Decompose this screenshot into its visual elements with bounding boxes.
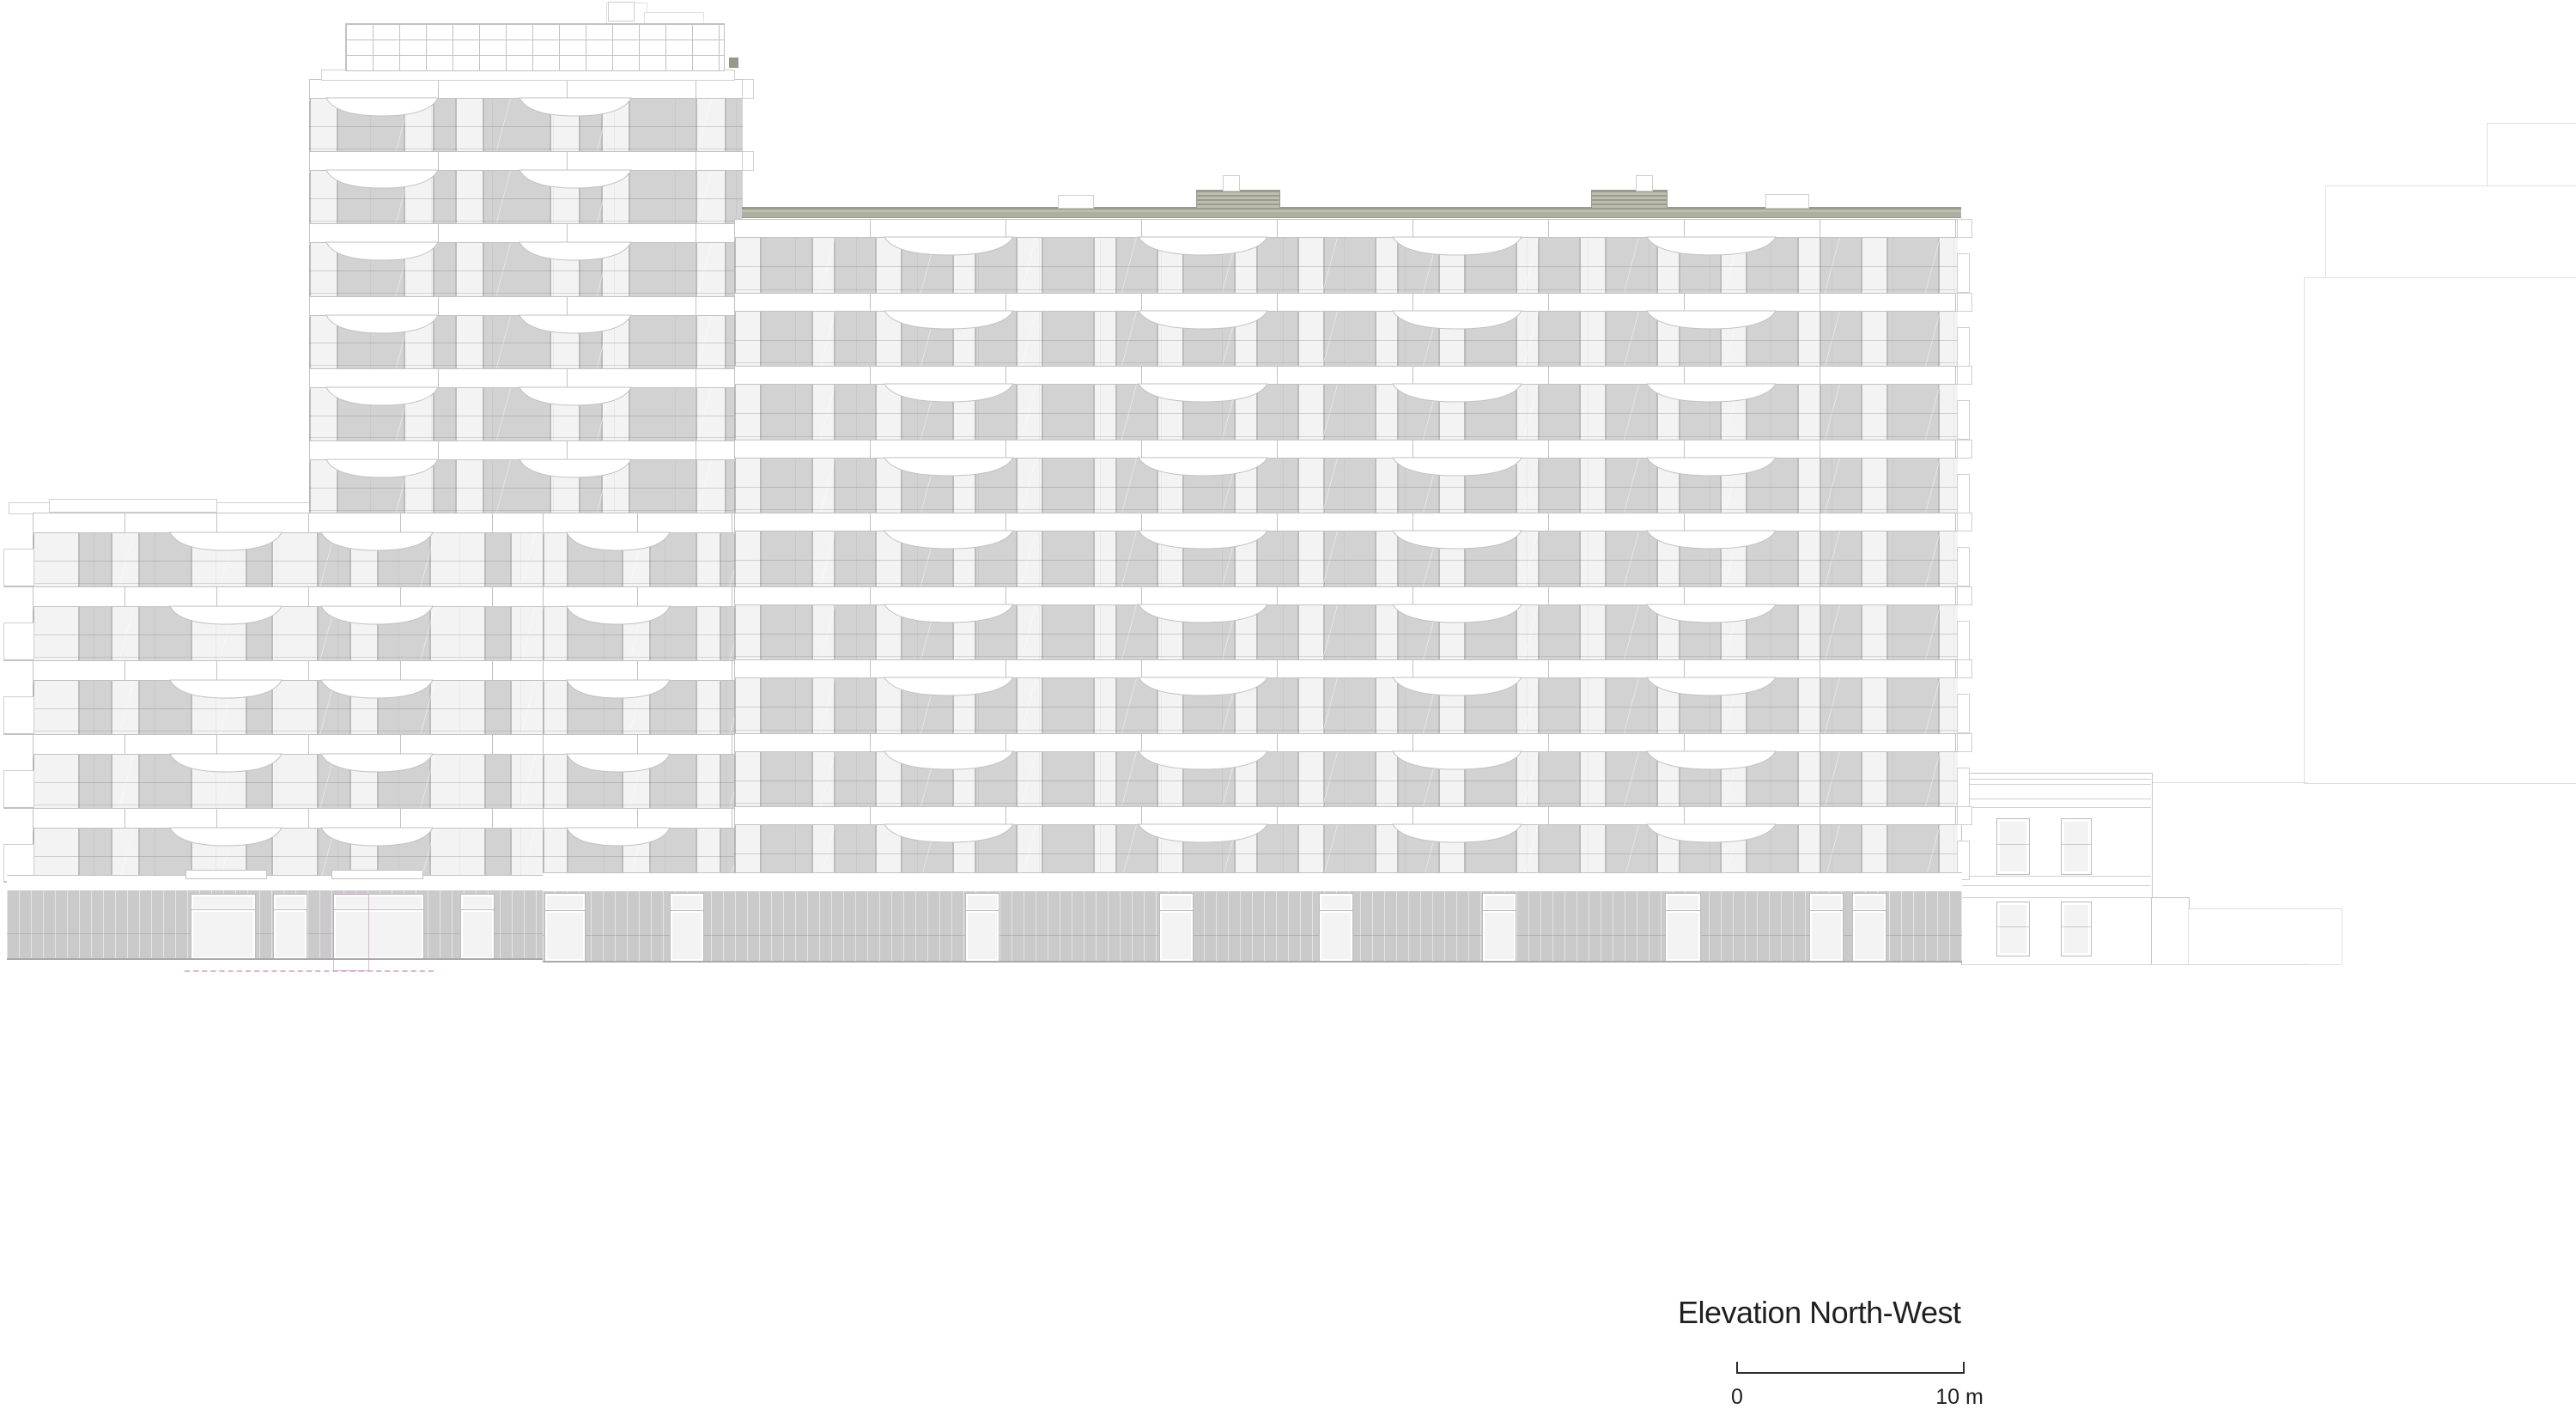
balcony-slab-right-tab <box>1957 293 1972 312</box>
balcony-slab-right-tab <box>1957 586 1972 605</box>
annex-facade-line <box>1961 784 2151 785</box>
balcony-rail-line <box>734 413 1958 414</box>
storefront-door <box>1809 910 1844 962</box>
corbel-arc <box>1139 237 1267 256</box>
balcony-rail-line <box>543 561 734 562</box>
balcony-slab-line <box>33 583 543 584</box>
storefront-door <box>1665 910 1701 962</box>
balcony-rail-right-tab <box>1957 768 1970 807</box>
ground-line <box>7 958 543 960</box>
facade-main-slab <box>734 219 1958 877</box>
corbel-arc <box>1393 824 1522 843</box>
floor-panel-row <box>33 681 543 734</box>
balcony-rail-line <box>309 488 743 489</box>
floor-slab-band <box>33 660 543 681</box>
corbel-arc <box>884 824 1013 843</box>
floor-slab-band <box>309 440 743 460</box>
storefront-door <box>273 909 307 960</box>
balcony-slab-line <box>33 805 543 805</box>
storefront-door <box>670 910 704 962</box>
corbel-arc <box>884 531 1013 550</box>
corbel-arc <box>321 606 433 625</box>
balcony-slab-line <box>543 657 734 658</box>
balcony-slab-right-tab <box>1957 219 1972 238</box>
annex-window <box>1996 818 2030 875</box>
threshold-dashed-mark <box>185 970 434 972</box>
balcony-rail-left-tab <box>3 549 34 587</box>
facade-tower-lower <box>543 513 734 877</box>
storefront-door <box>1159 910 1194 962</box>
floor-slab-band <box>33 513 543 533</box>
corbel-arc <box>170 828 282 847</box>
floor-slab-band <box>309 296 743 316</box>
ground-line <box>543 961 1962 963</box>
balcony-slab-line <box>734 656 1958 657</box>
annex-window-transom-line <box>2062 926 2091 927</box>
balcony-slab-line <box>309 149 743 149</box>
balcony-rail-right-tab <box>1957 400 1970 440</box>
corbel-arc <box>321 754 433 773</box>
corbel-arc <box>519 387 631 406</box>
corbel-arc <box>326 242 438 261</box>
annex-building <box>1961 773 2153 965</box>
balcony-slab-line <box>33 657 543 658</box>
annex-facade-line <box>1961 799 2151 799</box>
balcony-rail-left-tab <box>3 622 34 661</box>
floor-slab-band <box>734 659 1958 678</box>
balcony-rail-line <box>309 343 743 343</box>
storefront-transom <box>1852 893 1886 912</box>
base-wall <box>543 891 1962 962</box>
floor-slab-band <box>734 293 1958 312</box>
balcony-rail-right-tab <box>1957 327 1970 367</box>
balcony-rail-line <box>734 853 1958 854</box>
rooftop-vent <box>1223 175 1240 191</box>
corbel-arc <box>1393 237 1522 256</box>
corbel-arc <box>326 98 438 117</box>
background-outline-line <box>2151 782 2307 783</box>
corbel-arc <box>170 680 282 699</box>
roof-notch <box>729 58 738 68</box>
floor-slab-band <box>543 660 734 681</box>
balcony-rail-line <box>734 487 1958 488</box>
annex-facade-line <box>1961 897 2151 898</box>
balcony-slab-right-tab <box>1957 440 1972 459</box>
corbel-arc <box>519 459 631 478</box>
balcony-rail-line <box>734 560 1958 561</box>
storefront-transom <box>191 894 256 911</box>
balcony-rail-line <box>309 198 743 199</box>
corbel-arc <box>1393 384 1522 403</box>
balcony-slab-line <box>543 583 734 584</box>
base-left-wing <box>7 875 543 960</box>
annex-window <box>1996 902 2030 956</box>
floor-slab-band <box>309 368 743 388</box>
balcony-rail-right-tab <box>1957 547 1970 586</box>
annex-window-transom-line <box>1997 844 2029 845</box>
corbel-arc <box>519 242 631 261</box>
corbel-arc <box>1393 458 1522 477</box>
balcony-slab-line <box>543 805 734 805</box>
corbel-arc <box>326 459 438 478</box>
corbel-arc <box>1139 751 1267 770</box>
scale-label-end: 10 m <box>1912 1385 2007 1410</box>
annex-window-transom-line <box>1997 926 2029 927</box>
scale-bar-tick-left <box>1736 1362 1738 1374</box>
storefront-transom <box>965 893 999 912</box>
balcony-slab-line <box>309 510 743 511</box>
balcony-rail-line <box>734 707 1958 707</box>
corbel-arc <box>1647 604 1776 623</box>
rooftop-box <box>1765 194 1809 209</box>
floor-slab-band <box>543 586 734 607</box>
balcony-rail-line <box>543 708 734 709</box>
corbel-arc <box>567 532 670 551</box>
balcony-rail-line <box>309 126 743 127</box>
scale-bar-tick-right <box>1963 1362 1965 1374</box>
entrance-canopy <box>185 870 267 879</box>
corbel-arc <box>1139 677 1267 696</box>
balcony-rail-line <box>33 782 543 783</box>
corbel-arc <box>884 458 1013 477</box>
corbel-arc <box>1393 751 1522 770</box>
balcony-rail-left-tab <box>3 770 34 809</box>
storefront-transom <box>1482 893 1516 912</box>
corbel-arc <box>1139 531 1267 550</box>
balcony-slab-right-tab <box>1957 659 1972 678</box>
corbel-arc <box>884 604 1013 623</box>
base-cap-band <box>543 872 1962 893</box>
balcony-rail-left-tab <box>3 696 34 735</box>
balcony-rail-line <box>33 635 543 635</box>
balcony-slab-right-tab <box>1957 733 1972 752</box>
corbel-arc <box>884 751 1013 770</box>
balcony-slab-line <box>734 583 1958 584</box>
floor-panel-row <box>33 755 543 808</box>
balcony-rail-line <box>543 856 734 857</box>
balcony-rail-right-tab <box>1957 474 1970 513</box>
corbel-arc <box>170 532 282 551</box>
annex-window-transom-line <box>2062 844 2091 845</box>
corbel-arc <box>519 98 631 117</box>
storefront-transom <box>544 893 586 912</box>
corbel-arc <box>1647 677 1776 696</box>
corbel-arc <box>1393 677 1522 696</box>
floor-slab-band <box>33 586 543 607</box>
corbel-arc <box>519 170 631 189</box>
corbel-arc <box>1139 458 1267 477</box>
floor-slab-band <box>734 440 1958 459</box>
annex-extension <box>2151 897 2190 965</box>
rooftop-plant-housing <box>1591 190 1668 209</box>
balcony-rail-line <box>33 856 543 857</box>
balcony-rail-right-tab <box>1957 253 1970 293</box>
floor-slab-band <box>734 513 1958 531</box>
balcony-slab-right-tab <box>742 151 754 171</box>
elevation-canvas: Elevation North-West 0 10 m <box>0 0 2576 1415</box>
balcony-slab-line <box>309 365 743 366</box>
rooftop-plant-housing <box>1196 190 1280 209</box>
corbel-arc <box>567 606 670 625</box>
balcony-slab-line <box>734 509 1958 510</box>
parapet-detail <box>49 499 217 513</box>
corbel-arc <box>326 170 438 189</box>
balcony-rail-line <box>734 340 1958 341</box>
floor-slab-band <box>309 151 743 171</box>
corbel-arc <box>884 311 1013 330</box>
corbel-arc <box>1647 458 1776 477</box>
storefront-door <box>460 909 495 960</box>
storefront-door <box>965 910 999 962</box>
balcony-slab-line <box>734 362 1958 363</box>
corbel-arc <box>1139 604 1267 623</box>
storefront-door <box>191 909 256 960</box>
ground-line <box>1962 964 2307 965</box>
corbel-arc <box>321 828 433 847</box>
balcony-rail-line <box>33 561 543 562</box>
balcony-slab-right-tab <box>742 79 754 99</box>
corbel-arc <box>321 532 433 551</box>
corbel-arc <box>884 677 1013 696</box>
corbel-arc <box>567 828 670 847</box>
balcony-slab-line <box>734 730 1958 731</box>
base-wall-line <box>543 935 1962 936</box>
balcony-rail-line <box>734 780 1958 781</box>
floor-slab-band <box>543 734 734 755</box>
base-cap-band <box>7 875 543 892</box>
corbel-arc <box>1139 311 1267 330</box>
scale-bar-line <box>1736 1372 1965 1374</box>
floor-slab-band <box>734 586 1958 605</box>
corbel-arc <box>567 680 670 699</box>
corbel-arc <box>884 237 1013 256</box>
corbel-arc <box>326 315 438 334</box>
floor-slab-band <box>734 366 1958 385</box>
balcony-slab-right-tab <box>1957 806 1972 825</box>
balcony-rail-line <box>543 782 734 783</box>
corbel-arc <box>1393 311 1522 330</box>
balcony-rail-line <box>33 708 543 709</box>
balcony-slab-right-tab <box>1957 366 1972 385</box>
balcony-slab-line <box>734 803 1958 804</box>
balcony-slab-line <box>734 436 1958 437</box>
corbel-arc <box>567 754 670 773</box>
floor-slab-band <box>33 808 543 829</box>
floor-slab-band <box>33 734 543 755</box>
base-main-slab <box>543 872 1962 962</box>
storefront-door <box>544 910 586 962</box>
balcony-rail-line <box>309 270 743 271</box>
corbel-arc <box>170 606 282 625</box>
floor-slab-band <box>734 219 1958 238</box>
corbel-arc <box>1647 531 1776 550</box>
balcony-rail-right-tab <box>1957 694 1970 733</box>
corbel-arc <box>170 754 282 773</box>
balcony-rail-line <box>309 416 743 416</box>
corbel-arc <box>1647 237 1776 256</box>
corbel-arc <box>1393 604 1522 623</box>
balcony-slab-line <box>309 221 743 222</box>
annex-window <box>2061 818 2092 875</box>
roof-pergola-grid <box>345 23 725 71</box>
storefront-transom <box>670 893 704 912</box>
floor-panel-row <box>33 533 543 586</box>
balcony-rail-line <box>543 635 734 635</box>
corbel-arc <box>1139 384 1267 403</box>
storefront-transom <box>1319 893 1353 912</box>
balcony-slab-line <box>309 437 743 438</box>
floor-panel-row <box>33 829 543 877</box>
rooftop-vent <box>1636 175 1653 191</box>
storefront-door <box>1319 910 1353 962</box>
entrance-canopy <box>331 870 423 879</box>
corbel-arc <box>1647 311 1776 330</box>
facade-tower <box>309 79 743 513</box>
corbel-arc <box>1393 531 1522 550</box>
background-building-outline <box>2487 123 2576 188</box>
corbel-arc <box>884 384 1013 403</box>
rooftop-box <box>1058 195 1094 209</box>
floor-slab-band <box>309 79 743 99</box>
corbel-arc <box>1647 751 1776 770</box>
storefront-door <box>1852 910 1886 962</box>
storefront-transom <box>1809 893 1844 912</box>
balcony-slab-line <box>543 731 734 732</box>
floor-slab-band <box>309 223 743 243</box>
background-building-outline <box>2304 277 2576 784</box>
corbel-arc <box>1139 824 1267 843</box>
background-building-outline <box>2325 185 2576 279</box>
corbel-arc <box>519 315 631 334</box>
drawing-title: Elevation North-West <box>1678 1295 1960 1331</box>
corbel-arc <box>326 387 438 406</box>
storefront-door <box>1482 910 1516 962</box>
annex-facade-line <box>1961 779 2151 780</box>
annex-facade-line <box>1961 876 2151 877</box>
annex-facade-line <box>1961 885 2151 886</box>
balcony-slab-right-tab <box>1957 513 1972 531</box>
floor-slab-band <box>543 808 734 829</box>
floor-slab-band <box>543 513 734 533</box>
storefront-transom <box>273 894 307 911</box>
balcony-slab-line <box>309 293 743 294</box>
corbel-arc <box>1647 384 1776 403</box>
corbel-arc <box>1647 824 1776 843</box>
balcony-rail-right-tab <box>1957 621 1970 660</box>
annex-window <box>2061 902 2092 956</box>
balcony-slab-line <box>734 289 1958 290</box>
parapet-detail <box>608 2 635 21</box>
annex-facade-line <box>1961 807 2151 808</box>
floor-slab-band <box>734 733 1958 752</box>
annex-extension-outline <box>2188 908 2342 965</box>
corbel-arc <box>321 680 433 699</box>
storefront-transom <box>1665 893 1701 912</box>
balcony-rail-line <box>734 266 1958 267</box>
scale-label-zero: 0 <box>1716 1385 1759 1410</box>
balcony-slab-line <box>33 731 543 732</box>
facade-left-wing <box>33 513 543 877</box>
floor-panel-row <box>33 607 543 660</box>
balcony-rail-line <box>734 634 1958 635</box>
storefront-transom <box>1159 893 1194 912</box>
floor-slab-band <box>734 806 1958 825</box>
storefront-transom <box>460 894 495 911</box>
